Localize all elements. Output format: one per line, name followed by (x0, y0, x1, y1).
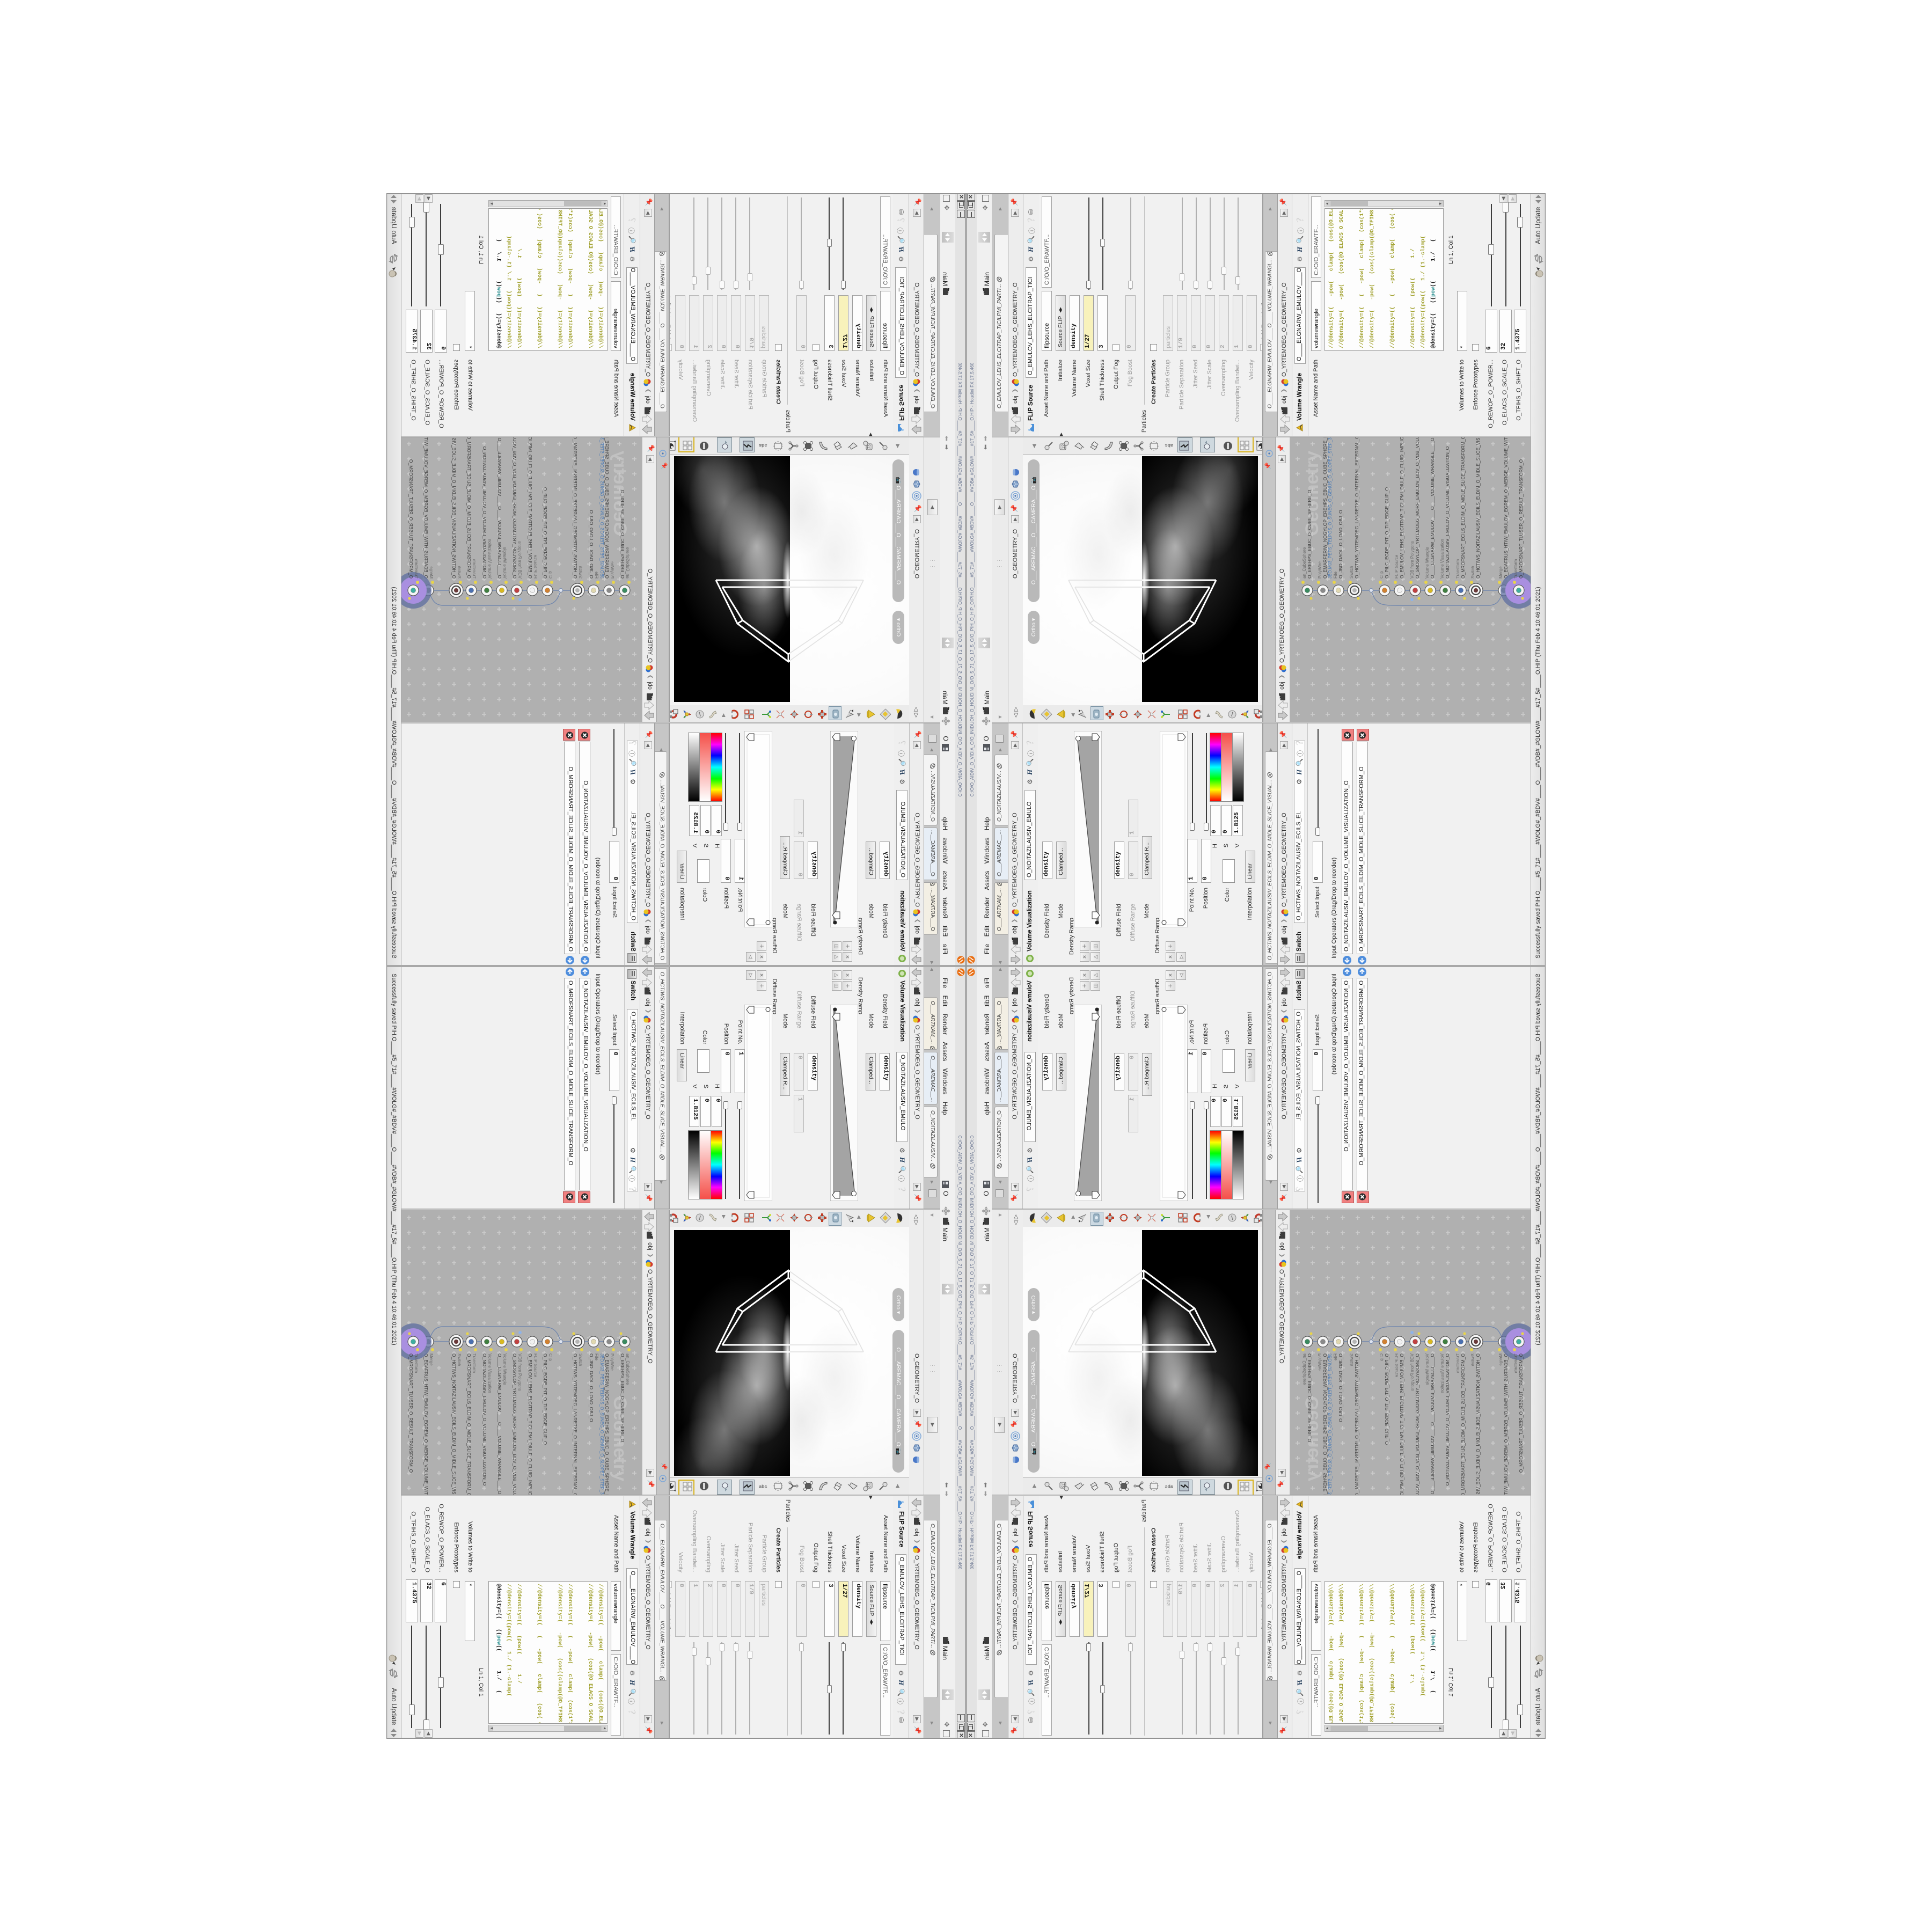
svg-text:Volume Visualization: Volume Visualization (487, 539, 492, 579)
svg-text:O_ECAFRUS_HTIW_EMULOV_EGREM_O_: O_ECAFRUS_HTIW_EMULOV_EGREM_O_MERGE_VOLU… (423, 1353, 429, 1495)
svg-text:PolyWire: PolyWire (610, 1353, 614, 1371)
svg-text:Clip: Clip (548, 1353, 553, 1361)
svg-text:O_PILC_EGDE_PIT_O_TIP_EDGE_CLI: O_PILC_EGDE_PIT_O_TIP_EDGE_CLIP_O (1384, 1353, 1389, 1445)
svg-text:O_NOITAZILAUSIV_EMULOV_O_VOLUM: O_NOITAZILAUSIV_EMULOV_O_VOLUME_VISUALIZ… (482, 446, 487, 579)
svg-text:Switch: Switch (457, 1353, 462, 1366)
svg-text:O_EREHPS_EBUC_O_CUBE_SPHERE_O: O_EREHPS_EBUC_O_CUBE_SPHERE_O (1307, 1353, 1312, 1443)
svg-text:O_PILC_EGDE_PIT_O_TIP_EDGE_CLI: O_PILC_EGDE_PIT_O_TIP_EDGE_CLIP_O (543, 487, 548, 579)
svg-text:O_PILC_EGDE_PIT_O_TIP_EDGE_CLI: O_PILC_EGDE_PIT_O_TIP_EDGE_CLIP_O (543, 1353, 548, 1445)
svg-text:Transform: Transform (1455, 1353, 1460, 1373)
svg-text:FLIP Source: FLIP Source (533, 554, 538, 579)
svg-text:O_EMARFERIW_NOGYLOP_EREHPS_EBU: O_EMARFERIW_NOGYLOP_EREHPS_EBUC_O_CUBE_S… (1322, 1353, 1328, 1495)
svg-text:O_HCTIWS_YRTEMOEG_LANRETXE_O_I: O_HCTIWS_YRTEMOEG_LANRETXE_O_INTERNAL_EX… (573, 437, 578, 579)
svg-text:O_HCTIWS_YRTEMOEG_LANRETXE_O_I: O_HCTIWS_YRTEMOEG_LANRETXE_O_INTERNAL_EX… (573, 1353, 578, 1495)
svg-text:Clip: Clip (1379, 571, 1384, 579)
svg-text:Merge: Merge (1498, 1353, 1503, 1366)
svg-text:O_EMULOV_LEHS_ELCITRAP_TICILPM: O_EMULOV_LEHS_ELCITRAP_TICILPMI_DIULF_O_… (528, 437, 533, 579)
svg-text:O_JBO_DAOL_O_LOAD_OBJ_O: O_JBO_DAOL_O_LOAD_OBJ_O (1338, 1353, 1343, 1422)
svg-text:abc: abc (1165, 1484, 1173, 1489)
svg-text:O_EMULOV_LEHS_ELCITRAP_TICILPM: O_EMULOV_LEHS_ELCITRAP_TICILPMI_DIULF_O_… (1399, 437, 1404, 579)
svg-text:O_JBO_DAOL_O_LOAD_OBJ_O: O_JBO_DAOL_O_LOAD_OBJ_O (589, 510, 594, 579)
svg-text:Clip: Clip (1379, 1353, 1384, 1361)
svg-text:O_JBO_DAOL_O_LOAD_OBJ_O: O_JBO_DAOL_O_LOAD_OBJ_O (589, 1353, 594, 1422)
svg-text:O_MROFSNART_TLUSER_O_RESULT_TR: O_MROFSNART_TLUSER_O_RESULT_TRANSFORM_O (408, 459, 414, 579)
svg-text:Volume Wrangle: Volume Wrangle (1425, 547, 1430, 579)
svg-text:O_HCTIWS_NOITAZILAUSIV_ECILS_E: O_HCTIWS_NOITAZILAUSIV_ECILS_ELDIM_O_MID… (451, 1353, 457, 1495)
svg-text:O_EMULOV_LEHS_ELCITRAP_TICILPM: O_EMULOV_LEHS_ELCITRAP_TICILPMI_DIULF_O_… (1399, 1353, 1404, 1495)
svg-text:Geometry: Geometry (1302, 1396, 1322, 1481)
svg-text:O_HCTIWS_NOITAZILAUSIV_ECILS_E: O_HCTIWS_NOITAZILAUSIV_ECILS_ELDIM_O_MID… (1475, 437, 1481, 579)
svg-text:File: File (594, 1353, 599, 1360)
svg-text:O_ECAFRUS_HTIW_EMULOV_EGREM_O_: O_ECAFRUS_HTIW_EMULOV_EGREM_O_MERGE_VOLU… (1503, 437, 1509, 579)
svg-text:O_ECAFRUS_HTIW_EMULOV_EGREM_O_: O_ECAFRUS_HTIW_EMULOV_EGREM_O_MERGE_VOLU… (423, 437, 429, 579)
svg-text:Merge: Merge (429, 566, 434, 579)
svg-text:O_NOITAZILAUSIV_EMULOV_O_VOLUM: O_NOITAZILAUSIV_EMULOV_O_VOLUME_VISUALIZ… (1445, 1353, 1450, 1486)
svg-text:Switch: Switch (1349, 1353, 1354, 1366)
svg-text:File: File (594, 572, 599, 579)
svg-text:JBO.M03_PETS_TELPOS_O_SUNEG_O_: JBO.M03_PETS_TELPOS_O_SUNEG_O_GENUS_O_SL… (1328, 1353, 1333, 1495)
svg-text:Switch: Switch (457, 566, 462, 579)
svg-text:O____ELGNARW_EMULOV____O____VO: O____ELGNARW_EMULOV____O____VOLUME_WRANG… (497, 1353, 502, 1495)
svg-text:Transform: Transform (1513, 1353, 1518, 1373)
svg-text:Transform: Transform (472, 1353, 477, 1373)
svg-text:VDB from Polygons: VDB from Polygons (517, 1353, 522, 1391)
svg-text:an_CubeSphere: an_CubeSphere (625, 547, 630, 579)
svg-text:VDB from Polygons: VDB from Polygons (1410, 541, 1415, 579)
svg-text:Volume Visualization: Volume Visualization (1440, 539, 1445, 579)
svg-text:O_HCTIWS_YRTEMOEG_LANRETXE_O_I: O_HCTIWS_YRTEMOEG_LANRETXE_O_INTERNAL_EX… (1354, 1353, 1359, 1495)
svg-text:Switch: Switch (1349, 566, 1354, 579)
svg-text:Switch: Switch (578, 1353, 583, 1366)
svg-text:Switch: Switch (1470, 566, 1475, 579)
svg-text:VDB from Polygons: VDB from Polygons (1410, 1353, 1415, 1391)
svg-text:O_MROFSNART_ECILS_ELDIM_O_MIDL: O_MROFSNART_ECILS_ELDIM_O_MIDLE_SLICE_TR… (1460, 437, 1466, 579)
svg-text:O_PILC_EGDE_PIT_O_TIP_EDGE_CLI: O_PILC_EGDE_PIT_O_TIP_EDGE_CLIP_O (1384, 487, 1389, 579)
svg-text:O_EREHPS_EBUC_O_CUBE_SPHERE_O: O_EREHPS_EBUC_O_CUBE_SPHERE_O (1307, 489, 1312, 579)
svg-text:O_SNOGYLOP_YRTEMOEG_MORF_EMULO: O_SNOGYLOP_YRTEMOEG_MORF_EMULOV_BDV_O_VD… (512, 1353, 517, 1495)
svg-text:O_EMARFERIW_NOGYLOP_EREHPS_EBU: O_EMARFERIW_NOGYLOP_EREHPS_EBUC_O_CUBE_S… (604, 1353, 610, 1495)
svg-text:Transform: Transform (414, 1353, 419, 1373)
svg-text:Transform: Transform (1513, 559, 1518, 579)
svg-text:O____ELGNARW_EMULOV____O____VO: O____ELGNARW_EMULOV____O____VOLUME_WRANG… (1430, 1353, 1435, 1495)
svg-text:JBO.M03_PETS_TELPOS_O_SUNEG_O_: JBO.M03_PETS_TELPOS_O_SUNEG_O_GENUS_O_SL… (599, 1353, 604, 1495)
svg-text:O_JBO_DAOL_O_LOAD_OBJ_O: O_JBO_DAOL_O_LOAD_OBJ_O (1338, 510, 1343, 579)
svg-text:Transform: Transform (472, 559, 477, 579)
svg-text:O_MROFSNART_ECILS_ELDIM_O_MIDL: O_MROFSNART_ECILS_ELDIM_O_MIDLE_SLICE_TR… (1460, 1353, 1466, 1495)
svg-text:abc: abc (759, 1484, 767, 1489)
svg-text:Switch: Switch (578, 566, 583, 579)
svg-text:Merge: Merge (1498, 566, 1503, 579)
svg-text:abc: abc (759, 443, 767, 448)
svg-text:Switch: Switch (1470, 1353, 1475, 1366)
svg-text:File: File (1333, 1353, 1338, 1360)
svg-text:O_HCTIWS_NOITAZILAUSIV_ECILS_E: O_HCTIWS_NOITAZILAUSIV_ECILS_ELDIM_O_MID… (451, 437, 457, 579)
svg-text:Volume Visualization: Volume Visualization (1440, 1353, 1445, 1393)
svg-text:O_EMULOV_LEHS_ELCITRAP_TICILPM: O_EMULOV_LEHS_ELCITRAP_TICILPMI_DIULF_O_… (528, 1353, 533, 1495)
svg-text:O_EMARFERIW_NOGYLOP_EREHPS_EBU: O_EMARFERIW_NOGYLOP_EREHPS_EBUC_O_CUBE_S… (604, 437, 610, 579)
svg-text:O_MROFSNART_ECILS_ELDIM_O_MIDL: O_MROFSNART_ECILS_ELDIM_O_MIDLE_SLICE_TR… (466, 437, 472, 579)
svg-text:O_EREHPS_EBUC_O_CUBE_SPHERE_O: O_EREHPS_EBUC_O_CUBE_SPHERE_O (620, 1353, 625, 1443)
svg-text:File: File (1333, 572, 1338, 579)
svg-text:FLIP Source: FLIP Source (1394, 1353, 1399, 1378)
svg-text:an_CubeSphere: an_CubeSphere (1302, 1353, 1307, 1385)
svg-text:O_SNOGYLOP_YRTEMOEG_MORF_EMULO: O_SNOGYLOP_YRTEMOEG_MORF_EMULOV_BDV_O_VD… (512, 437, 517, 579)
svg-text:O_EMARFERIW_NOGYLOP_EREHPS_EBU: O_EMARFERIW_NOGYLOP_EREHPS_EBUC_O_CUBE_S… (1322, 437, 1328, 579)
svg-text:Merge: Merge (429, 1353, 434, 1366)
svg-text:O____ELGNARW_EMULOV____O____VO: O____ELGNARW_EMULOV____O____VOLUME_WRANG… (497, 437, 502, 579)
svg-text:Volume Wrangle: Volume Wrangle (1425, 1353, 1430, 1385)
svg-text:an_CubeSphere: an_CubeSphere (625, 1353, 630, 1385)
svg-text:PolyWire: PolyWire (1318, 1353, 1322, 1371)
svg-text:O_MROFSNART_TLUSER_O_RESULT_TR: O_MROFSNART_TLUSER_O_RESULT_TRANSFORM_O (1518, 459, 1524, 579)
svg-text:O_EREHPS_EBUC_O_CUBE_SPHERE_O: O_EREHPS_EBUC_O_CUBE_SPHERE_O (620, 489, 625, 579)
svg-text:Volume Wrangle: Volume Wrangle (502, 1353, 507, 1385)
svg-text:VDB from Polygons: VDB from Polygons (517, 541, 522, 579)
svg-text:O_MROFSNART_TLUSER_O_RESULT_TR: O_MROFSNART_TLUSER_O_RESULT_TRANSFORM_O (1518, 1353, 1524, 1473)
svg-text:O_NOITAZILAUSIV_EMULOV_O_VOLUM: O_NOITAZILAUSIV_EMULOV_O_VOLUME_VISUALIZ… (1445, 446, 1450, 579)
svg-text:JBO.M03_PETS_TELPOS_O_SUNEG_O_: JBO.M03_PETS_TELPOS_O_SUNEG_O_GENUS_O_SL… (1328, 437, 1333, 579)
svg-text:Clip: Clip (548, 571, 553, 579)
svg-text:O_HCTIWS_NOITAZILAUSIV_ECILS_E: O_HCTIWS_NOITAZILAUSIV_ECILS_ELDIM_O_MID… (1475, 1353, 1481, 1495)
svg-text:O_NOITAZILAUSIV_EMULOV_O_VOLUM: O_NOITAZILAUSIV_EMULOV_O_VOLUME_VISUALIZ… (482, 1353, 487, 1486)
svg-text:O_SNOGYLOP_YRTEMOEG_MORF_EMULO: O_SNOGYLOP_YRTEMOEG_MORF_EMULOV_BDV_O_VD… (1415, 437, 1420, 579)
svg-text:Volume Wrangle: Volume Wrangle (502, 547, 507, 579)
svg-text:O_MROFSNART_TLUSER_O_RESULT_TR: O_MROFSNART_TLUSER_O_RESULT_TRANSFORM_O (408, 1353, 414, 1473)
svg-text:Volume Visualization: Volume Visualization (487, 1353, 492, 1393)
svg-text:O_ECAFRUS_HTIW_EMULOV_EGREM_O_: O_ECAFRUS_HTIW_EMULOV_EGREM_O_MERGE_VOLU… (1503, 1353, 1509, 1495)
svg-text:FLIP Source: FLIP Source (533, 1353, 538, 1378)
svg-text:O_MROFSNART_ECILS_ELDIM_O_MIDL: O_MROFSNART_ECILS_ELDIM_O_MIDLE_SLICE_TR… (466, 1353, 472, 1495)
svg-text:PolyWire: PolyWire (610, 561, 614, 579)
svg-text:PolyWire: PolyWire (1318, 561, 1322, 579)
svg-text:Transform: Transform (414, 559, 419, 579)
svg-text:O____ELGNARW_EMULOV____O____VO: O____ELGNARW_EMULOV____O____VOLUME_WRANG… (1430, 437, 1435, 579)
svg-text:Geometry: Geometry (1302, 451, 1322, 536)
svg-text:O_HCTIWS_YRTEMOEG_LANRETXE_O_I: O_HCTIWS_YRTEMOEG_LANRETXE_O_INTERNAL_EX… (1354, 437, 1359, 579)
svg-text:JBO.M03_PETS_TELPOS_O_SUNEG_O_: JBO.M03_PETS_TELPOS_O_SUNEG_O_GENUS_O_SL… (599, 437, 604, 579)
svg-text:O_SNOGYLOP_YRTEMOEG_MORF_EMULO: O_SNOGYLOP_YRTEMOEG_MORF_EMULOV_BDV_O_VD… (1415, 1353, 1420, 1495)
svg-text:Transform: Transform (1455, 559, 1460, 579)
svg-text:FLIP Source: FLIP Source (1394, 554, 1399, 579)
svg-text:an_CubeSphere: an_CubeSphere (1302, 547, 1307, 579)
svg-text:abc: abc (1165, 443, 1173, 448)
